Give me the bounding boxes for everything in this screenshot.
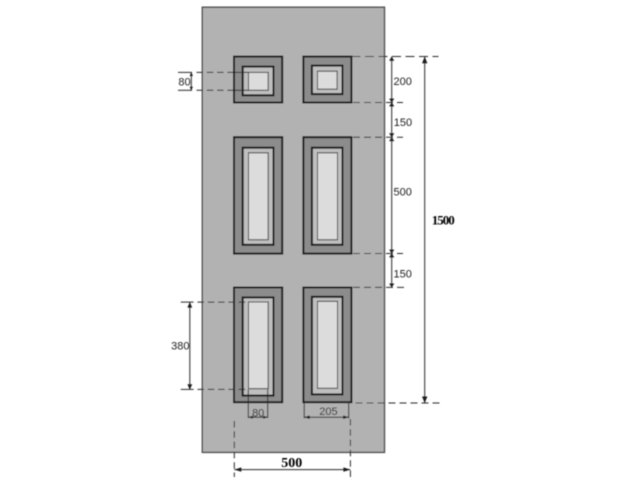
svg-text:205: 205 xyxy=(319,406,337,418)
svg-text:500: 500 xyxy=(281,456,302,471)
svg-text:80: 80 xyxy=(252,407,264,419)
svg-text:380: 380 xyxy=(171,340,189,352)
svg-text:1500: 1500 xyxy=(432,212,455,227)
svg-text:150: 150 xyxy=(394,268,412,280)
svg-text:150: 150 xyxy=(394,117,412,129)
svg-text:80: 80 xyxy=(178,77,190,89)
svg-text:500: 500 xyxy=(394,187,412,199)
svg-text:200: 200 xyxy=(394,76,412,88)
